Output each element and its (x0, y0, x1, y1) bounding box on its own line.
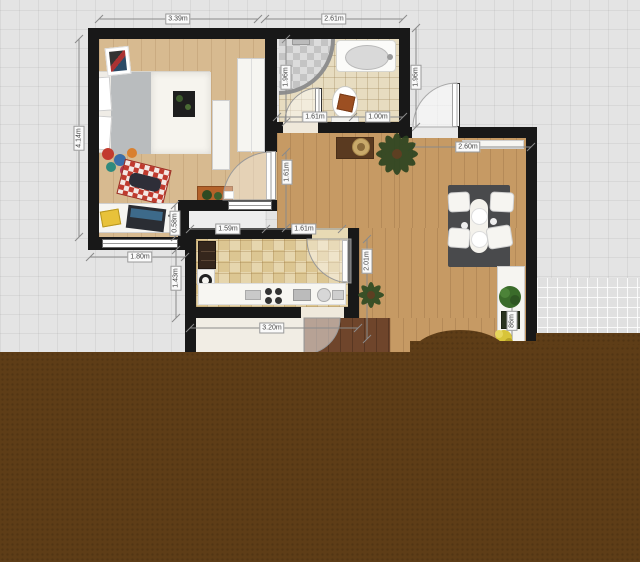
wall (399, 127, 412, 138)
dim-bedroom-left: 4.14m (74, 125, 85, 150)
stove-burner (265, 288, 272, 295)
brown-overlay-far-right (536, 333, 640, 345)
lower-room-floor-wood (304, 318, 390, 354)
front-door-opening (412, 127, 458, 138)
kitchen-tray (293, 289, 311, 301)
dim-bathroom-door: 1.61m (302, 112, 327, 123)
bathroom-door-opening (283, 122, 318, 133)
kitchen-counter[interactable] (198, 283, 346, 305)
stove-burner (275, 288, 282, 295)
wall-shelf[interactable] (497, 266, 525, 346)
bed[interactable] (92, 71, 210, 153)
plate (471, 208, 488, 225)
tray-plant (176, 95, 183, 102)
stove-burner (275, 297, 282, 304)
wardrobe[interactable] (237, 58, 265, 152)
terrace-tiles (537, 278, 640, 338)
wall (399, 28, 410, 138)
dining-chair-2[interactable] (489, 191, 514, 212)
bed-blanket (111, 72, 151, 154)
bathroom-sink[interactable] (336, 40, 396, 72)
dining-chair-4[interactable] (485, 224, 513, 250)
sink-faucet (387, 54, 393, 60)
dim-kitchen-right-height: 2.01m (362, 248, 373, 273)
dim-bathroom-left: 1.96m (281, 64, 292, 89)
wall (526, 127, 537, 345)
bed-tray (173, 91, 195, 117)
bowl (490, 218, 497, 225)
wall (88, 28, 410, 39)
bedroom-window-2[interactable] (228, 201, 272, 210)
wall (265, 28, 277, 152)
pot (317, 288, 331, 302)
toilet[interactable] (332, 86, 358, 118)
dim-bathroom-top: 2.61m (321, 14, 346, 25)
stove-burner (265, 297, 272, 304)
book (100, 208, 121, 227)
wall (185, 307, 301, 318)
lower-room-door-opening (301, 307, 344, 318)
laptop (126, 205, 167, 232)
radiator[interactable] (292, 39, 310, 45)
wall (88, 28, 99, 250)
tray-plant-2 (185, 104, 191, 110)
toilet-lid (337, 94, 356, 113)
kitchen-item (332, 290, 344, 300)
dim-bedroom-top: 3.39m (165, 14, 190, 25)
bedroom-window[interactable] (102, 239, 178, 248)
dim-lower-room: 3.20m (259, 323, 284, 334)
dining-chair-1[interactable] (447, 191, 470, 212)
dim-kitchen-seg-a: 1.59m (215, 224, 240, 235)
picture-art (109, 50, 127, 72)
straw-hat[interactable] (352, 138, 370, 156)
dim-entrance-right: 1.96m (411, 64, 422, 89)
dim-shelf-partial: 86m (507, 311, 518, 331)
sink-basin (345, 45, 389, 70)
wall-picture[interactable] (105, 46, 132, 76)
wall (348, 228, 359, 318)
brown-overlay-main (0, 352, 640, 562)
bedroom-door-leaf[interactable] (266, 151, 276, 200)
wall (265, 122, 283, 133)
dim-bathroom-wall: 1.00m (365, 112, 390, 123)
dresser[interactable] (212, 100, 230, 170)
cutting-board (245, 290, 261, 300)
lower-room-floor (196, 318, 304, 354)
dim-bedroom-window: 1.80m (127, 252, 152, 263)
chair-seat (128, 172, 162, 193)
fridge[interactable] (198, 241, 216, 269)
dim-kitchen-left-gap: 1.43m (171, 265, 182, 290)
dim-desk-step: 0.58m (170, 210, 181, 235)
kitchen-door-opening (312, 228, 348, 239)
wall (185, 318, 196, 354)
dim-hallway: 1.61m (282, 159, 293, 184)
front-door-leaf[interactable] (452, 83, 460, 127)
floorplan-canvas: 3.39m 2.61m 4.14m 1.96m 1.96m 1.61m 1.00… (0, 0, 640, 562)
dining-chair-3[interactable] (447, 227, 470, 248)
dim-kitchen-seg-b: 1.61m (291, 224, 316, 235)
wall (344, 307, 359, 318)
kitchen-door-leaf[interactable] (342, 240, 348, 282)
wall (185, 228, 196, 318)
wall (318, 122, 410, 133)
dim-living-top: 2.60m (455, 142, 480, 153)
